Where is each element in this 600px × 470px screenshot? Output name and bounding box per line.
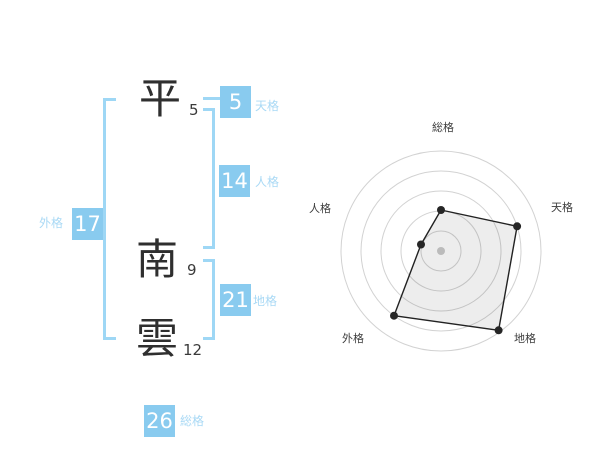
- radar-chart: 総格天格地格外格人格: [300, 112, 590, 362]
- jinkaku-bracket-vertical: [212, 108, 215, 249]
- given-name-character-2: 雲: [131, 317, 183, 361]
- tenkaku-connector-line: [203, 97, 220, 100]
- given-name-character-1: 南: [131, 238, 183, 282]
- gaikaku-label: 外格: [39, 216, 63, 230]
- radar-axis-label: 人格: [309, 201, 331, 215]
- radar-data-point: [495, 326, 503, 334]
- name-analysis-panel: 平 5 南 9 雲 12 5 天格 14 人格 21 地格 外格 17 26 総…: [0, 0, 600, 470]
- jinkaku-bracket-tick-top: [203, 108, 215, 111]
- chikaku-label: 地格: [253, 294, 277, 308]
- surname-character: 平: [134, 77, 186, 121]
- chikaku-bracket-vertical: [212, 259, 215, 340]
- given-name-stroke-count-1: 9: [187, 263, 197, 278]
- gaikaku-value-badge: 17: [72, 208, 103, 240]
- radar-axis-label: 外格: [342, 331, 364, 345]
- radar-data-point: [390, 312, 398, 320]
- chikaku-bracket-tick-top: [203, 259, 215, 262]
- radar-data-polygon: [394, 210, 517, 330]
- gaikaku-bracket-vertical: [103, 98, 106, 340]
- jinkaku-label: 人格: [255, 175, 279, 189]
- radar-axis-label: 天格: [551, 200, 573, 214]
- radar-data-point: [417, 241, 425, 249]
- gaikaku-bracket-tick-bottom: [103, 337, 116, 340]
- jinkaku-value-badge: 14: [219, 165, 250, 197]
- soukaku-label: 総格: [180, 414, 204, 428]
- tenkaku-label: 天格: [255, 99, 279, 113]
- chikaku-value-badge: 21: [220, 284, 251, 316]
- gaikaku-bracket-tick-top: [103, 98, 116, 101]
- jinkaku-bracket-tick-bottom: [203, 246, 215, 249]
- surname-stroke-count: 5: [189, 103, 199, 118]
- radar-center-dot: [437, 247, 445, 255]
- radar-data-point: [513, 222, 521, 230]
- chikaku-bracket-tick-bottom: [203, 337, 215, 340]
- tenkaku-value-badge: 5: [220, 86, 251, 118]
- radar-data-point: [437, 206, 445, 214]
- given-name-stroke-count-2: 12: [183, 343, 202, 358]
- radar-axis-label: 総格: [432, 120, 454, 134]
- radar-axis-label: 地格: [514, 331, 536, 345]
- soukaku-value-badge: 26: [144, 405, 175, 437]
